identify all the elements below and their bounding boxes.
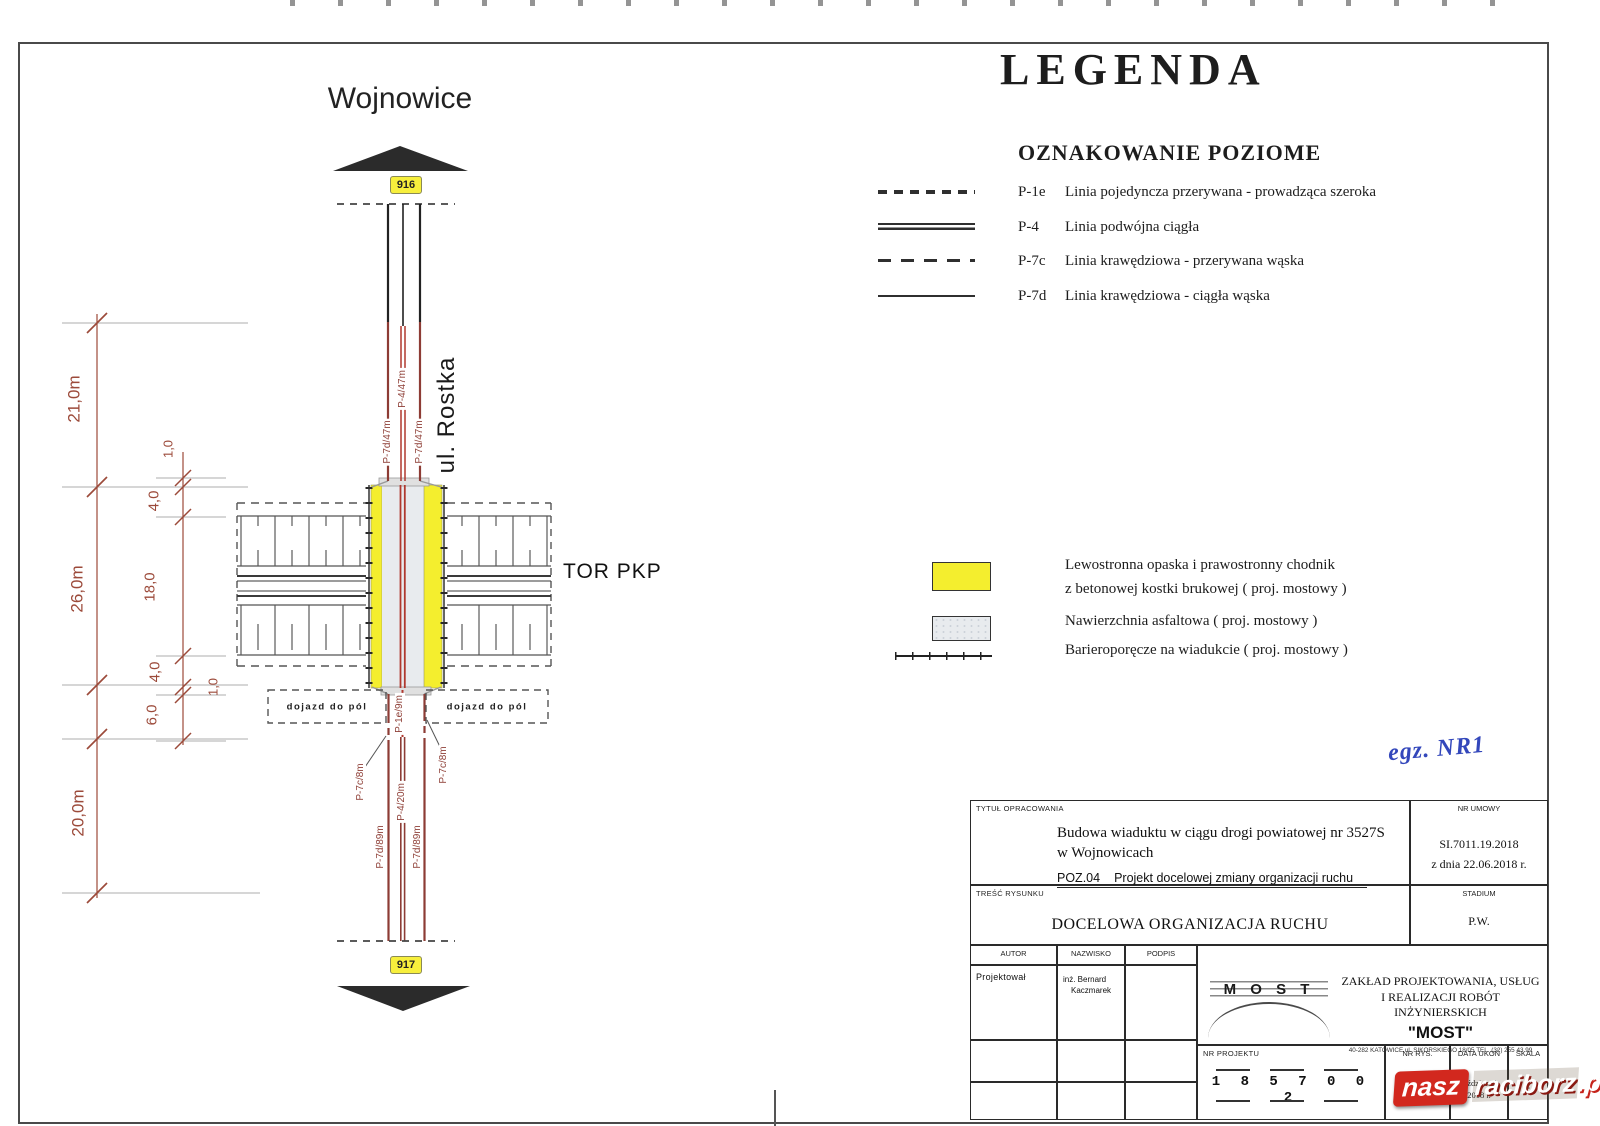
nr-projektu-dash-top <box>1216 1069 1368 1071</box>
cell-nazwisko-row2 <box>1057 1040 1125 1082</box>
legend-code-p1e: P-1e <box>1018 184 1046 201</box>
nr-projektu-dash-bottom <box>1216 1100 1368 1102</box>
autor-role: Projektował <box>976 972 1026 982</box>
legend-swatch-asphalt <box>932 616 991 641</box>
cell-podpis-row2 <box>1125 1040 1197 1082</box>
legend-swatch-sidewalk <box>932 562 991 591</box>
watermark-raciborz: raciborz <box>1472 1067 1579 1102</box>
viaduct <box>366 478 447 695</box>
marking-p7d-lower-right: P-7d/89m <box>413 823 423 870</box>
dim-4-top: 4,0 <box>147 491 162 512</box>
nr-rys-label: NR RYS. <box>1386 1049 1449 1058</box>
legend-section-title: OZNAKOWANIE POZIOME <box>1018 140 1321 166</box>
stadium-value: P.W. <box>1411 914 1547 929</box>
legend-title: LEGENDA <box>1000 44 1230 95</box>
watermark-pl: .pl <box>1577 1066 1600 1098</box>
legend-code-p4: P-4 <box>1018 219 1039 236</box>
podpis-label: PODPIS <box>1126 949 1196 958</box>
poz-desc: Projekt docelowej zmiany organizacji ruc… <box>1114 871 1353 885</box>
legend-code-p7c: P-7c <box>1018 253 1046 270</box>
nr-umowy-label: NR UMOWY <box>1411 804 1547 813</box>
cell-autor-row2 <box>970 1040 1057 1082</box>
project-title-line1: Budowa wiaduktu w ciągu drogi powiatowej… <box>1057 823 1385 843</box>
watermark-nasz: nasz <box>1393 1069 1469 1107</box>
cell-autor-row3 <box>970 1082 1057 1120</box>
marking-p7d-upper-right: P-7d/47m <box>415 418 425 465</box>
dim-18: 18,0 <box>143 572 158 601</box>
cell-autor-name: inż. Bernard Kaczmarek <box>1057 965 1125 1040</box>
street-name-label: ul. Rostka <box>435 357 459 474</box>
marking-p4-upper: P-4/47m <box>398 368 408 410</box>
cell-company: M O S T ZAKŁAD PROJEKTOWANIA, USŁUG I RE… <box>1197 945 1548 1045</box>
cell-autor-role: Projektował <box>970 965 1057 1040</box>
legend-sample-p1e <box>878 190 975 194</box>
field-access-label-right: dojazd do pól <box>447 702 528 713</box>
dim-21m: 21,0m <box>66 375 83 422</box>
arrow-south <box>337 986 470 1011</box>
cell-nazwisko-header: NAZWISKO <box>1057 945 1125 965</box>
legend-desc-sidewalk-1: Lewostronna opaska i prawostronny chodni… <box>1065 557 1335 574</box>
legend-desc-p4: Linia podwójna ciągła <box>1065 219 1199 236</box>
legend-desc-p7c: Linia krawędziowa - przerywana wąska <box>1065 253 1304 270</box>
cell-autor-header: AUTOR <box>970 945 1057 965</box>
route-badge-916: 916 <box>390 176 422 194</box>
autor-label: AUTOR <box>971 949 1056 958</box>
dim-26m: 26,0m <box>69 565 86 612</box>
arrow-north <box>333 146 468 171</box>
tresc-value: DOCELOWA ORGANIZACJA RUCHU <box>971 916 1409 934</box>
legend-desc-asphalt: Nawierzchnia asfaltowa ( proj. mostowy ) <box>1065 613 1317 630</box>
cell-nazwisko-row3 <box>1057 1082 1125 1120</box>
legend-desc-barrier: Barieroporęcze na wiadukcie ( proj. most… <box>1065 642 1348 659</box>
cell-podpis-header: PODPIS <box>1125 945 1197 965</box>
legend-desc-p7d: Linia krawędziowa - ciągła wąska <box>1065 288 1270 305</box>
legend-sample-p7d <box>878 295 975 297</box>
barrier-line <box>895 655 992 657</box>
legend-sample-p4 <box>878 223 975 230</box>
destination-label: Wojnowice <box>300 82 500 115</box>
route-badge-917: 917 <box>390 956 422 974</box>
company-name: "MOST" <box>1338 1023 1543 1043</box>
cell-podpis-row3 <box>1125 1082 1197 1120</box>
data-ukon-label: DATA UKOŃ <box>1451 1049 1507 1058</box>
dim-4-bottom: 4,0 <box>148 662 163 683</box>
poz-code: POZ.04 <box>1057 871 1100 885</box>
legend-desc-sidewalk-2: z betonowej kostki brukowej ( proj. most… <box>1065 581 1347 598</box>
company-line2: I REALIZACJI ROBÓT INŻYNIERSKICH <box>1338 990 1543 1021</box>
autor-name-line1: inż. Bernard <box>1063 974 1111 985</box>
skala-label: SKALA <box>1509 1049 1547 1058</box>
legend-desc-p1e: Linia pojedyncza przerywana - prowadząca… <box>1065 184 1376 201</box>
most-logo: M O S T <box>1210 981 1328 999</box>
drawing-sheet: Wojnowice 916 917 ul. Rostka TOR PKP doj… <box>0 0 1600 1126</box>
tresc-label: TREŚĆ RYSUNKU <box>976 889 1044 898</box>
dim-1-bottom: 1,0 <box>207 678 220 696</box>
cell-tresc: TREŚĆ RYSUNKU DOCELOWA ORGANIZACJA RUCHU <box>970 885 1410 945</box>
dimension-chains <box>62 313 260 903</box>
dim-1-top: 1,0 <box>162 440 175 458</box>
marking-p7c-right: P-7c/8m <box>439 744 449 785</box>
field-access-label-left: dojazd do pól <box>287 702 368 713</box>
most-logo-arc <box>1208 1002 1330 1038</box>
nr-umowy-date: z dnia 22.06.2018 r. <box>1411 857 1547 872</box>
nr-projektu-label: NR PROJEKTU <box>1203 1049 1259 1058</box>
dim-6: 6,0 <box>145 705 160 726</box>
marking-p4-lower: P-4/20m <box>397 781 407 823</box>
railway-label: TOR PKP <box>563 560 662 583</box>
cell-stadium: STADIUM P.W. <box>1410 885 1548 945</box>
cell-nr-umowy: NR UMOWY SI.7011.19.2018 z dnia 22.06.20… <box>1410 800 1548 885</box>
sheet-fold-mark <box>774 1090 776 1126</box>
project-title-line2: w Wojnowicach <box>1057 843 1385 863</box>
dim-20m: 20,0m <box>70 789 87 836</box>
marking-p1e: P-1e/9m <box>395 693 405 735</box>
cell-podpis-signature <box>1125 965 1197 1040</box>
marking-p7c-left: P-7c/8m <box>356 761 366 802</box>
tytul-label: TYTUŁ OPRACOWANIA <box>976 804 1064 813</box>
legend-symbol-barrier <box>895 652 992 660</box>
autor-name-line2: Kaczmarek <box>1063 985 1111 996</box>
site-watermark: nasz raciborz .pl <box>1393 1064 1600 1106</box>
marking-p7d-upper-left: P-7d/47m <box>383 418 393 465</box>
nr-umowy-value: SI.7011.19.2018 <box>1411 837 1547 852</box>
stadium-label: STADIUM <box>1411 889 1547 898</box>
nazwisko-label: NAZWISKO <box>1058 949 1124 958</box>
cell-tytul: TYTUŁ OPRACOWANIA Budowa wiaduktu w ciąg… <box>970 800 1410 885</box>
legend-code-p7d: P-7d <box>1018 288 1046 305</box>
legend-sample-p7c <box>878 259 975 262</box>
marking-p7d-lower-left: P-7d/89m <box>376 823 386 870</box>
company-line1: ZAKŁAD PROJEKTOWANIA, USŁUG <box>1338 974 1543 990</box>
cell-nr-projektu: NR PROJEKTU 1 8 5 7 0 0 2 <box>1197 1045 1385 1120</box>
